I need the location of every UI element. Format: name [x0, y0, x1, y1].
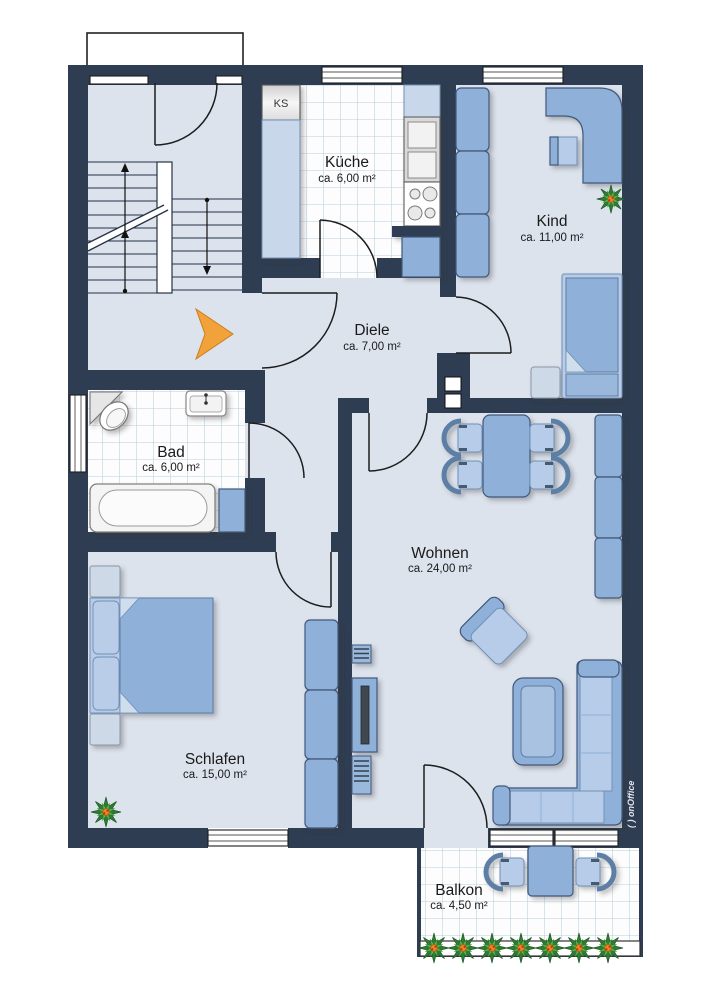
- kind-bed: [562, 274, 622, 398]
- floor-plan-page: KS Küche ca. 6,00 m² Kind ca. 11,00 m² D…: [0, 0, 706, 1000]
- bedroom-window: [208, 830, 288, 846]
- stove: [404, 182, 440, 226]
- wohnen-wardrobe: [595, 415, 622, 598]
- desk-chair: [550, 137, 577, 165]
- kitchen-wall-jut: [392, 226, 440, 237]
- kind-window: [483, 67, 563, 83]
- room-area-schlafen: ca. 15,00 m²: [183, 769, 247, 781]
- kind-wardrobe: [456, 88, 489, 277]
- kitchen-cabinet: [402, 237, 440, 277]
- flue-opening: [445, 377, 461, 391]
- kitchen-counter: [404, 85, 440, 117]
- bath-cabinet: [219, 489, 245, 532]
- room-name-bad: Bad: [157, 444, 185, 461]
- room-name-schlafen: Schlafen: [185, 751, 245, 768]
- kitchen-counter: [262, 120, 300, 258]
- room-area-wohnen: ca. 24,00 m²: [408, 563, 472, 575]
- fridge-label: KS: [274, 98, 289, 110]
- coffee-table: [513, 678, 563, 765]
- oven: [404, 117, 440, 182]
- room-name-kueche: Küche: [325, 154, 369, 171]
- dining-table: [483, 415, 530, 497]
- room-area-kind: ca. 11,00 m²: [520, 232, 583, 244]
- bath-window: [70, 395, 86, 472]
- schlafen-wardrobe: [305, 620, 338, 828]
- sink: [186, 391, 226, 416]
- floor-plan: KS Küche ca. 6,00 m² Kind ca. 11,00 m² D…: [0, 0, 706, 1000]
- kind-nightstand: [531, 367, 560, 398]
- bathtub: [90, 484, 215, 532]
- room-name-balkon: Balkon: [435, 882, 482, 899]
- room-name-diele: Diele: [354, 322, 389, 339]
- entrance-sidelight: [90, 76, 148, 84]
- room-name-kind: Kind: [536, 213, 567, 230]
- room-area-kueche: ca. 6,00 m²: [318, 173, 376, 185]
- room-area-balkon: ca. 4,50 m²: [430, 900, 488, 912]
- balcony-table: [528, 846, 573, 896]
- kitchen-window: [322, 67, 402, 83]
- room-area-bad: ca. 6,00 m²: [142, 462, 200, 474]
- flue-opening: [445, 394, 461, 408]
- room-name-wohnen: Wohnen: [411, 545, 468, 562]
- watermark: ( ) onOffice: [626, 781, 636, 828]
- room-area-diele: ca. 7,00 m²: [343, 341, 401, 353]
- entrance-sidelight: [216, 76, 242, 84]
- entrance-platform: [87, 33, 243, 66]
